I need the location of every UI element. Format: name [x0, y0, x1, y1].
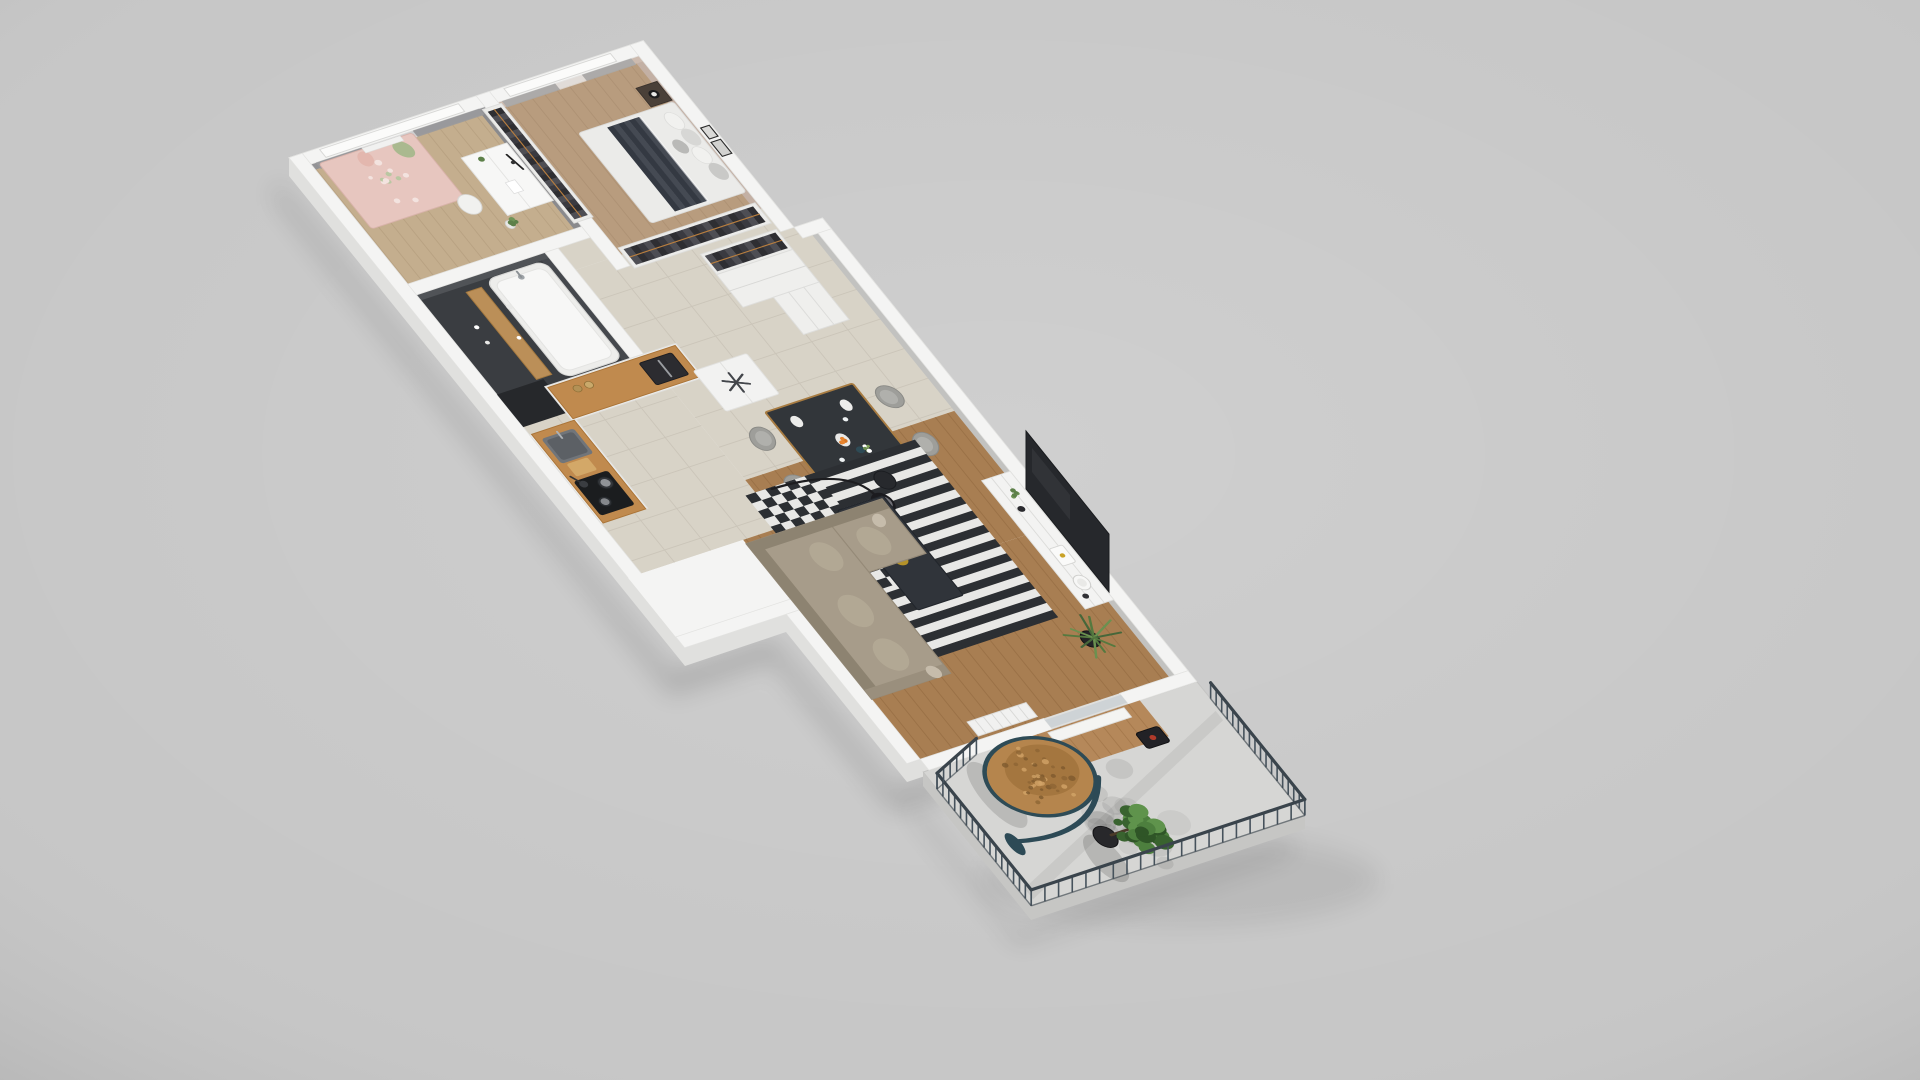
apartment-axonometric-scene	[0, 0, 1920, 1080]
floorplan-3d-render	[0, 0, 1920, 1080]
